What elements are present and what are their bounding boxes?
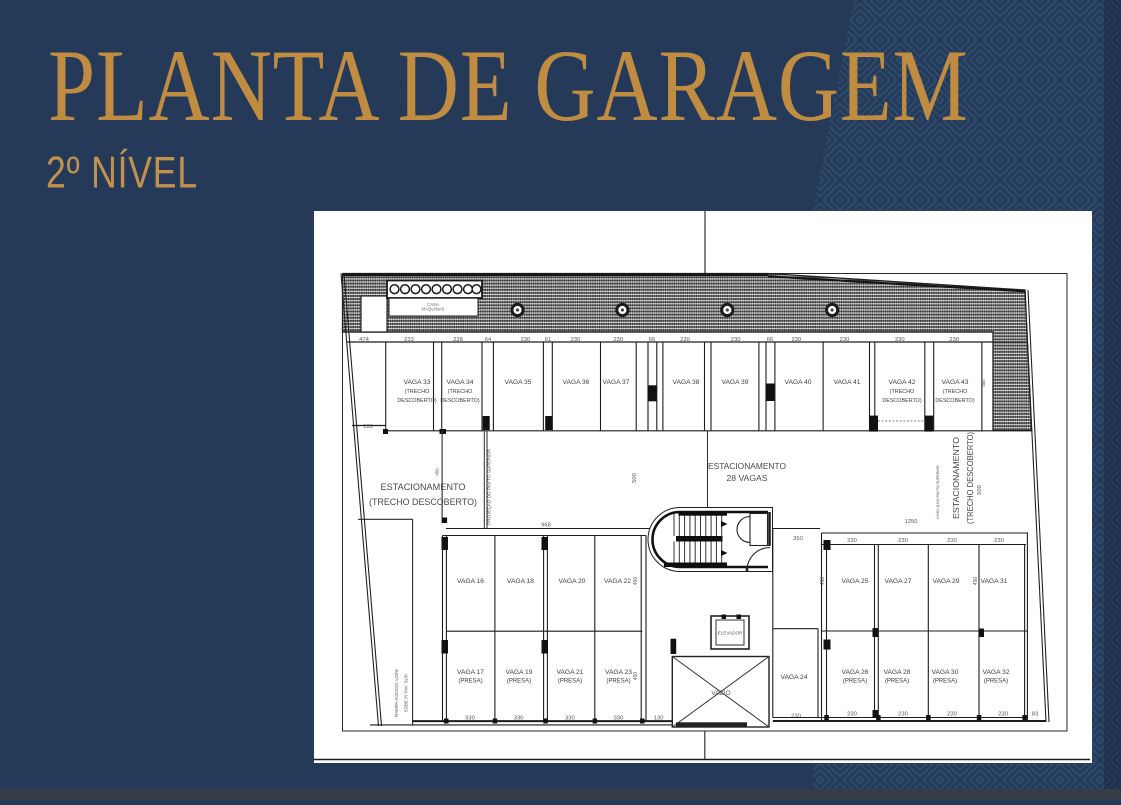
svg-text:VAGA 33: VAGA 33 bbox=[403, 379, 430, 386]
svg-text:66: 66 bbox=[649, 337, 655, 343]
svg-text:230: 230 bbox=[947, 712, 957, 718]
svg-text:450: 450 bbox=[435, 468, 440, 476]
svg-text:968: 968 bbox=[541, 523, 551, 529]
svg-text:500: 500 bbox=[632, 473, 638, 483]
svg-text:VAGA 29: VAGA 29 bbox=[932, 578, 959, 585]
svg-text:450: 450 bbox=[981, 379, 986, 387]
svg-text:230: 230 bbox=[847, 712, 857, 718]
svg-text:(TRECHO DESCOBERTO): (TRECHO DESCOBERTO) bbox=[965, 432, 975, 524]
svg-text:VAGA 34: VAGA 34 bbox=[446, 379, 473, 386]
svg-text:330: 330 bbox=[465, 716, 475, 722]
svg-text:230: 230 bbox=[947, 538, 957, 544]
svg-text:(PRESA): (PRESA) bbox=[984, 679, 1008, 685]
svg-text:VAGA 17: VAGA 17 bbox=[457, 669, 484, 676]
svg-text:230: 230 bbox=[949, 337, 959, 343]
svg-text:61: 61 bbox=[545, 337, 551, 343]
svg-text:VAGA 35: VAGA 35 bbox=[504, 379, 531, 386]
svg-text:230: 230 bbox=[847, 538, 857, 544]
svg-text:230: 230 bbox=[791, 714, 801, 720]
svg-text:83: 83 bbox=[1032, 712, 1038, 718]
svg-text:VAGA 37: VAGA 37 bbox=[602, 379, 629, 386]
svg-text:(TRECHO: (TRECHO bbox=[405, 389, 430, 395]
svg-text:230: 230 bbox=[791, 337, 801, 343]
svg-text:(PRESA): (PRESA) bbox=[933, 679, 957, 685]
svg-text:SOBE P/ PAV. SUP.: SOBE P/ PAV. SUP. bbox=[404, 674, 409, 713]
svg-text:DESCOBERTO): DESCOBERTO) bbox=[882, 398, 922, 404]
svg-text:PROJEÇÃO DO PAV'TO SUPERIOR: PROJEÇÃO DO PAV'TO SUPERIOR bbox=[486, 448, 492, 524]
svg-text:ESTACIONAMENTO: ESTACIONAMENTO bbox=[951, 437, 961, 519]
svg-text:ELEVADOR: ELEVADOR bbox=[718, 631, 743, 636]
svg-text:230: 230 bbox=[898, 712, 908, 718]
svg-text:230: 230 bbox=[571, 337, 581, 343]
svg-text:450: 450 bbox=[820, 577, 826, 586]
svg-text:330: 330 bbox=[614, 716, 624, 722]
svg-text:VAGA 18: VAGA 18 bbox=[507, 578, 534, 585]
svg-text:474: 474 bbox=[359, 337, 369, 343]
svg-text:(PRESA): (PRESA) bbox=[558, 679, 582, 685]
svg-text:230: 230 bbox=[613, 337, 623, 343]
svg-text:VAGA 31: VAGA 31 bbox=[980, 578, 1007, 585]
svg-text:(PRESA): (PRESA) bbox=[458, 679, 482, 685]
svg-text:VAGA 26: VAGA 26 bbox=[841, 669, 868, 676]
svg-text:VAGA 40: VAGA 40 bbox=[784, 379, 811, 386]
svg-text:VAGA 28: VAGA 28 bbox=[883, 669, 910, 676]
svg-text:450: 450 bbox=[633, 577, 639, 586]
svg-text:VAGA 27: VAGA 27 bbox=[884, 578, 911, 585]
svg-text:330: 330 bbox=[565, 716, 575, 722]
svg-text:VAGA 20: VAGA 20 bbox=[558, 578, 585, 585]
svg-text:VAGA 21: VAGA 21 bbox=[556, 669, 583, 676]
svg-text:VAGA 24: VAGA 24 bbox=[780, 674, 807, 681]
svg-text:130: 130 bbox=[654, 716, 664, 722]
svg-text:(PRESA): (PRESA) bbox=[843, 679, 867, 685]
svg-text:(TRECHO DESCOBERTO): (TRECHO DESCOBERTO) bbox=[369, 497, 477, 508]
svg-text:136: 136 bbox=[363, 424, 373, 430]
svg-text:VAGA 41: VAGA 41 bbox=[833, 379, 860, 386]
svg-text:(TRECHO: (TRECHO bbox=[448, 389, 473, 395]
svg-text:DESCOBERTO): DESCOBERTO) bbox=[440, 398, 480, 404]
svg-text:VAGA 30: VAGA 30 bbox=[931, 669, 958, 676]
svg-text:VAGA 25: VAGA 25 bbox=[841, 578, 868, 585]
svg-text:VAGA 16: VAGA 16 bbox=[457, 578, 484, 585]
svg-text:DESCOBERTO): DESCOBERTO) bbox=[397, 398, 437, 404]
svg-text:VAGA 38: VAGA 38 bbox=[672, 379, 699, 386]
svg-text:230: 230 bbox=[680, 337, 690, 343]
svg-text:(PRESA): (PRESA) bbox=[507, 679, 531, 685]
svg-text:1250: 1250 bbox=[905, 519, 918, 525]
svg-text:2º NÍVEL: 2º NÍVEL bbox=[46, 148, 198, 198]
svg-text:230: 230 bbox=[731, 337, 741, 343]
svg-text:VAGA 19: VAGA 19 bbox=[505, 669, 532, 676]
svg-text:VAGA 23: VAGA 23 bbox=[605, 669, 632, 676]
svg-text:450: 450 bbox=[973, 577, 979, 586]
svg-text:28 VAGAS: 28 VAGAS bbox=[727, 473, 768, 483]
svg-text:VAGA 36: VAGA 36 bbox=[562, 379, 589, 386]
svg-text:230: 230 bbox=[898, 538, 908, 544]
svg-text:ESTACIONAMENTO: ESTACIONAMENTO bbox=[381, 482, 466, 493]
svg-text:230: 230 bbox=[840, 337, 850, 343]
svg-text:350: 350 bbox=[793, 536, 803, 542]
svg-text:VAGA 42: VAGA 42 bbox=[888, 379, 915, 386]
svg-text:(PRESA): (PRESA) bbox=[606, 679, 630, 685]
svg-text:(PRESA): (PRESA) bbox=[885, 679, 909, 685]
svg-text:ESTACIONAMENTO: ESTACIONAMENTO bbox=[708, 461, 786, 471]
svg-text:MAQUINAS: MAQUINAS bbox=[422, 307, 445, 312]
svg-text:(TRECHO: (TRECHO bbox=[943, 389, 968, 395]
svg-text:230: 230 bbox=[994, 538, 1004, 544]
svg-text:233: 233 bbox=[404, 337, 414, 343]
svg-text:66: 66 bbox=[767, 337, 773, 343]
svg-text:230: 230 bbox=[521, 337, 531, 343]
svg-text:DESCOBERTO): DESCOBERTO) bbox=[935, 398, 975, 404]
svg-text:230: 230 bbox=[895, 337, 905, 343]
svg-text:330: 330 bbox=[514, 716, 524, 722]
svg-text:228: 228 bbox=[453, 337, 463, 343]
svg-text:450: 450 bbox=[633, 672, 639, 681]
svg-text:VAGA 22: VAGA 22 bbox=[604, 578, 631, 585]
svg-text:64: 64 bbox=[485, 337, 492, 343]
svg-text:230: 230 bbox=[998, 712, 1008, 718]
svg-text:(TRECHO: (TRECHO bbox=[890, 389, 915, 395]
svg-text:VAZIO: VAZIO bbox=[711, 690, 730, 697]
svg-text:PLANTA DE GARAGEM: PLANTA DE GARAGEM bbox=[48, 29, 969, 143]
svg-text:VAGA 39: VAGA 39 bbox=[721, 379, 748, 386]
svg-text:RAMPA ACESSO i=20%: RAMPA ACESSO i=20% bbox=[394, 669, 399, 717]
svg-text:VAGA 32: VAGA 32 bbox=[982, 669, 1009, 676]
svg-text:NÍVEL Q.DO PAV'TO SUPERIOR: NÍVEL Q.DO PAV'TO SUPERIOR bbox=[936, 465, 940, 519]
svg-text:500: 500 bbox=[977, 485, 983, 495]
svg-text:VAGA 43: VAGA 43 bbox=[941, 379, 968, 386]
